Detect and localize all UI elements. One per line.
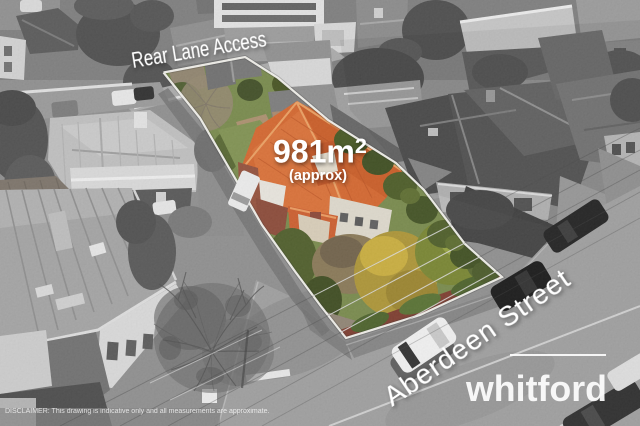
svg-text:(approx): (approx) <box>289 168 347 184</box>
svg-text:981m2: 981m2 <box>273 134 367 170</box>
svg-text:whitford: whitford <box>465 368 607 409</box>
svg-text:DISCLAIMER: This drawing is in: DISCLAIMER: This drawing is indicative o… <box>5 408 269 415</box>
